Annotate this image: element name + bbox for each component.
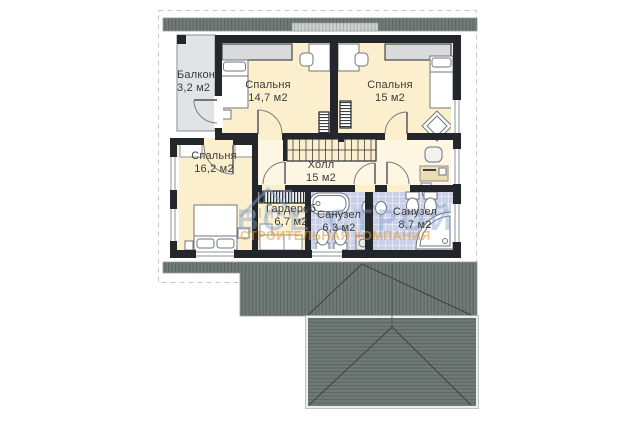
chair (300, 53, 313, 66)
room-area: 16,2 м2 (177, 163, 251, 176)
wardrobe-unit (222, 44, 292, 60)
room-label-bathroom-small: Санузел 6,3 м2 (307, 209, 371, 235)
dressing-table (420, 166, 448, 181)
room-area: 8,7 м2 (381, 219, 449, 232)
window (168, 209, 179, 241)
window (312, 249, 342, 259)
window (196, 249, 234, 259)
room-area: 6,3 м2 (307, 222, 371, 235)
room-name: Спальня (351, 79, 429, 92)
staircase (287, 137, 376, 161)
room-label-hall: Холл 15 м2 (282, 159, 360, 185)
window (451, 100, 463, 133)
nightstand (185, 241, 193, 250)
room-area: 15 м2 (351, 92, 429, 105)
room-area: 3,2 м2 (177, 82, 223, 95)
top-roof-strip (163, 18, 477, 31)
room-label-balcony: Балкон 3,2 м2 (177, 69, 223, 95)
floor-plan-canvas: ВСЕ СТРОЙ СТРОИТЕЛЬНАЯ КОМПАНИЯ Балкон 3… (0, 0, 640, 427)
roof-plan (163, 262, 479, 409)
stool (425, 147, 442, 162)
room-label-bedroom-top-right: Спальня 15 м2 (351, 79, 429, 105)
window (451, 149, 463, 184)
bed (430, 56, 453, 108)
vent-shaft (319, 112, 329, 133)
room-name: Санузел (307, 209, 371, 222)
room-label-bedroom-top-left: Спальня 14,7 м2 (229, 79, 307, 105)
room-name: Санузел (381, 206, 449, 219)
room-name: Балкон (177, 69, 223, 82)
vent-shaft (340, 101, 351, 128)
room-name: Спальня (177, 150, 251, 163)
room-area: 15 м2 (282, 172, 360, 185)
balcony-corner-post (177, 35, 186, 44)
room-label-bedroom-left: Спальня 16,2 м2 (177, 150, 251, 176)
room-name: Спальня (229, 79, 307, 92)
chair (355, 53, 368, 66)
room-name: Холл (282, 159, 360, 172)
room-label-bathroom-large: Санузел 8,7 м2 (381, 206, 449, 232)
room-area: 14,7 м2 (229, 92, 307, 105)
bed (194, 205, 237, 250)
